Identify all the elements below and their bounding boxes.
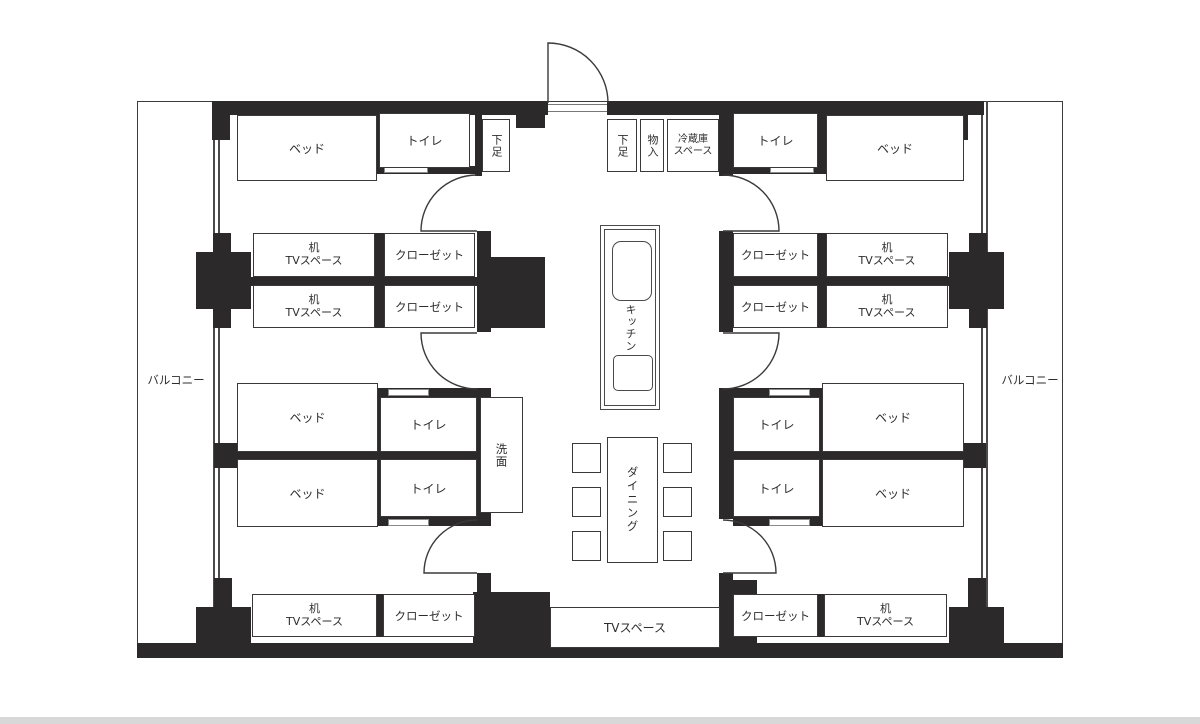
toilet-label: トイレ xyxy=(757,132,793,149)
desk-label-line2: TVスペース xyxy=(286,616,343,629)
toilet-mid-right-lower: トイレ xyxy=(733,459,820,517)
window-line xyxy=(218,101,220,643)
desk-label-line2: TVスペース xyxy=(859,307,916,320)
toilet-label: トイレ xyxy=(410,416,446,433)
bed-top-left: ベッド xyxy=(237,115,377,181)
wall-shaft-left xyxy=(478,257,545,328)
wall-pillar xyxy=(214,578,232,608)
toilet-label: トイレ xyxy=(406,132,442,149)
wall-pillar xyxy=(212,101,230,140)
bed-label: ベッド xyxy=(289,140,325,157)
dining-chair xyxy=(572,443,601,473)
shoe-storage-right: 下足 xyxy=(607,119,637,172)
desk-label-line1: 机 xyxy=(309,603,320,616)
wall-pillar xyxy=(213,233,231,253)
dining-chair xyxy=(663,531,692,561)
toilet-mid-left-lower: トイレ xyxy=(380,459,477,517)
window-line xyxy=(986,101,988,643)
closet: クローゼット xyxy=(384,233,475,277)
page-bottom-strip xyxy=(0,717,1200,724)
closet: クローゼット xyxy=(733,285,818,328)
tv-space-room: TVスペース xyxy=(550,607,720,648)
desk-label-line2: TVスペース xyxy=(857,616,914,629)
dining-chair xyxy=(572,531,601,561)
closet: クローゼット xyxy=(384,285,475,328)
closet-label: クローゼット xyxy=(741,608,810,624)
bed-top-right: ベッド xyxy=(826,115,964,181)
window-line xyxy=(981,101,983,643)
fridge-space: 冷蔵庫 スペース xyxy=(667,119,719,172)
closet-label: クローゼット xyxy=(395,247,464,263)
dining-chair xyxy=(663,487,692,517)
balcony-right: バルコニー xyxy=(993,372,1067,388)
fridge-label-line1: 冷蔵庫 xyxy=(678,134,708,146)
shoe-label: 下足 xyxy=(488,134,504,158)
bed-mid-left-upper: ベッド xyxy=(237,383,378,452)
desk-tv-space: 机TVスペース xyxy=(826,233,948,277)
wall-divider-right xyxy=(719,115,733,176)
balcony-label: バルコニー xyxy=(147,372,204,388)
kitchen-sink xyxy=(612,241,652,301)
desk-label-line2: TVスペース xyxy=(859,255,916,268)
closet: クローゼット xyxy=(733,233,818,277)
desk-label-line2: TVスペース xyxy=(286,255,343,268)
bed-label: ベッド xyxy=(289,485,325,502)
shoe-storage-left: 下足 xyxy=(482,119,510,172)
toilet-label: トイレ xyxy=(758,480,794,497)
closet-divider xyxy=(375,233,384,328)
dining-label: ダイニング xyxy=(625,466,641,534)
toilet-label: トイレ xyxy=(410,480,446,497)
closet-label: クローゼット xyxy=(395,608,464,624)
floor-plan: ベッド ベッド ベッド ベッド ベッド ベッド トイレ トイレ トイレ トイレ … xyxy=(0,0,1200,724)
bed-mid-right-lower: ベッド xyxy=(822,459,964,527)
toilet-door xyxy=(388,389,429,396)
balcony-left: バルコニー xyxy=(139,372,213,388)
dining-chair xyxy=(663,443,692,473)
entrance-threshold xyxy=(548,104,607,112)
wall-pillar xyxy=(949,607,1004,643)
closet-label: クローゼット xyxy=(741,299,810,315)
kitchen-label-area: キッチン xyxy=(604,298,656,358)
desk-tv-space: 机TVスペース xyxy=(824,594,947,637)
toilet-label: トイレ xyxy=(758,416,794,433)
desk-tv-space: 机TVスペース xyxy=(253,285,375,328)
bed-mid-left-lower: ベッド xyxy=(237,459,378,527)
wall-pillar xyxy=(968,578,986,608)
wall-entry-stub xyxy=(516,101,545,128)
bed-mid-right-upper: ベッド xyxy=(822,383,964,452)
bed-label: ベッド xyxy=(875,409,911,426)
dining-table: ダイニング xyxy=(607,437,658,563)
toilet-wall xyxy=(818,113,826,174)
tv-space-label: TVスペース xyxy=(604,619,666,636)
balcony-label: バルコニー xyxy=(1001,372,1058,388)
bed-label: ベッド xyxy=(875,485,911,502)
storage-closet: 物入 xyxy=(640,119,664,172)
desk-label-line2: TVスペース xyxy=(286,307,343,320)
window-line xyxy=(213,101,215,643)
bed-label: ベッド xyxy=(289,409,325,426)
desk-label-line1: 机 xyxy=(882,294,893,307)
toilet-door xyxy=(388,519,429,526)
closet-label: クローゼット xyxy=(741,247,810,263)
closet: クローゼット xyxy=(733,594,818,637)
toilet-door xyxy=(769,389,810,396)
wall-pillar xyxy=(196,607,251,643)
desk-label-line1: 机 xyxy=(880,603,891,616)
toilet-top-left: トイレ xyxy=(379,113,470,168)
wall-pillar xyxy=(213,307,231,328)
closet: クローゼット xyxy=(383,594,475,637)
wall-chunk-bottom-left xyxy=(473,592,550,643)
closet-label: クローゼット xyxy=(395,299,464,315)
shoe-label: 下足 xyxy=(614,134,630,158)
storage-label: 物入 xyxy=(644,134,660,158)
kitchen-label: キッチン xyxy=(622,304,638,352)
toilet-mid-right-upper: トイレ xyxy=(733,397,820,452)
desk-tv-space: 机TVスペース xyxy=(826,285,948,328)
wall-between-rooms xyxy=(215,452,491,459)
bed-label: ベッド xyxy=(877,140,913,157)
desk-tv-space: 机TVスペース xyxy=(252,594,377,637)
washstand-room: 洗面 xyxy=(480,397,523,513)
washstand-label: 洗面 xyxy=(494,443,510,468)
wall-between-rooms xyxy=(719,452,985,459)
desk-tv-space: 机TVスペース xyxy=(253,233,375,277)
wall-pillar xyxy=(969,307,987,328)
closet-divider xyxy=(818,233,826,328)
wall-pillar xyxy=(969,233,987,253)
fridge-label-line2: スペース xyxy=(674,146,713,158)
toilet-mid-left-upper: トイレ xyxy=(380,397,477,452)
door-arc-entrance xyxy=(548,43,608,103)
dining-chair xyxy=(572,487,601,517)
desk-label-line1: 机 xyxy=(309,294,320,307)
toilet-top-right: トイレ xyxy=(733,113,818,168)
toilet-door xyxy=(769,519,810,526)
kitchen-stove xyxy=(613,355,653,391)
